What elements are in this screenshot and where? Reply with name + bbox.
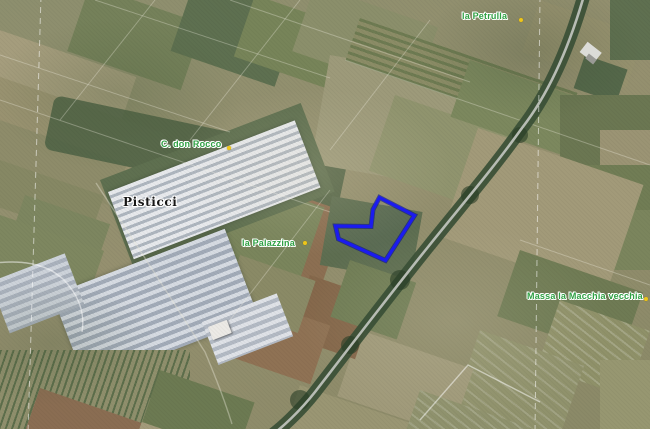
map-canvas[interactable]: la PetrullaC. don RoccoPisticcila Palazz…	[0, 0, 650, 429]
place-marker-dot-massa-la-macchia-vecchia	[644, 297, 648, 301]
place-marker-dot-c-don-rocco	[227, 146, 231, 150]
place-label-c-don-rocco: C. don Rocco	[161, 139, 221, 149]
place-marker-dot-la-palazzina	[303, 241, 307, 245]
place-marker-dot-la-petrulla	[519, 18, 523, 22]
place-label-la-petrulla: la Petrulla	[462, 11, 507, 21]
labels-layer: la PetrullaC. don RoccoPisticcila Palazz…	[0, 0, 650, 429]
place-label-la-palazzina: la Palazzina	[242, 238, 295, 248]
place-label-massa-la-macchia-vecchia: Massa la Macchia vecchia	[527, 291, 643, 301]
place-label-pisticci: Pisticci	[123, 195, 177, 209]
